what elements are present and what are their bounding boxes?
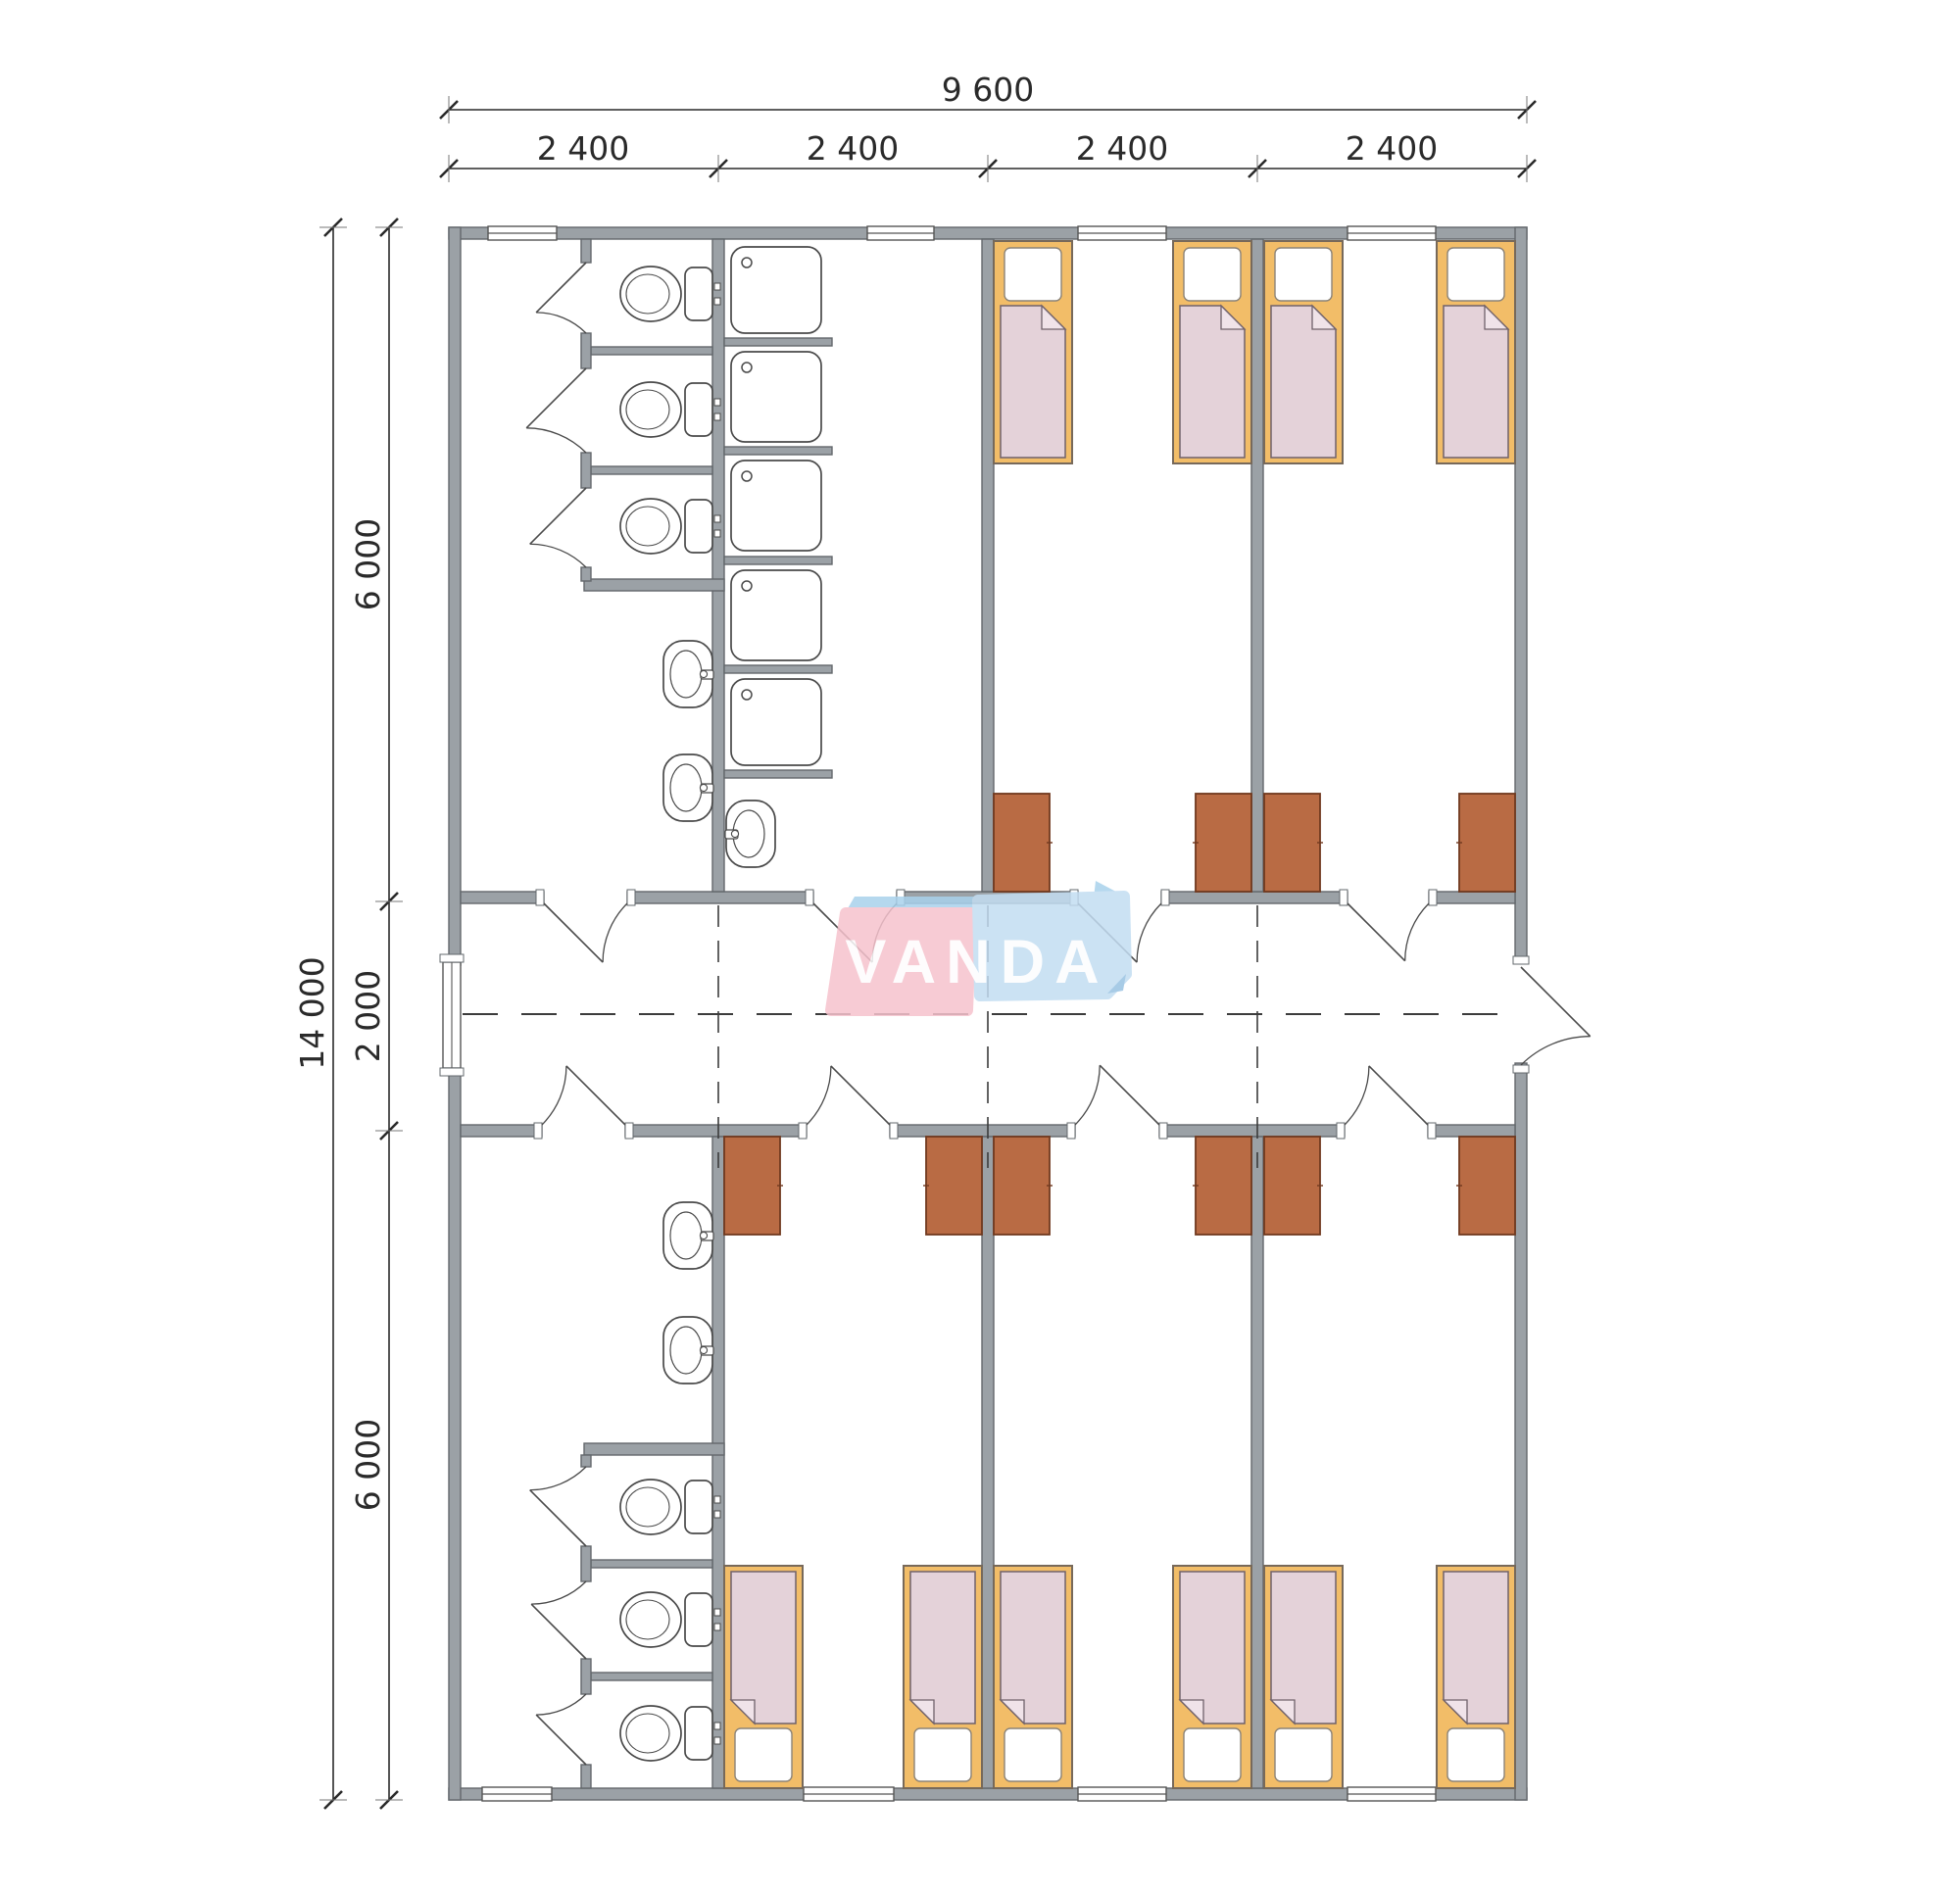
wall-segment [581, 1765, 591, 1788]
door-swing [603, 903, 627, 962]
bed [1437, 1566, 1515, 1788]
desk [1456, 794, 1515, 892]
shower-tray-icon [731, 570, 821, 660]
wall-segment [712, 1137, 724, 1788]
flush-plate [714, 1723, 720, 1729]
desk [1264, 794, 1323, 892]
toilet-icon [620, 1592, 720, 1647]
logo-watermark: VANDA [831, 881, 1129, 1010]
toilet-tank [685, 1707, 712, 1760]
desk-top [1264, 794, 1320, 892]
dimension-label: 2 400 [807, 129, 899, 168]
flush-plate [714, 1609, 720, 1616]
washbasin-icon [663, 754, 713, 821]
stall-door-swing [530, 1467, 586, 1490]
wall-segment [1515, 1063, 1527, 1800]
dimension-label: 2 000 [349, 970, 387, 1062]
shower-tray [731, 247, 821, 333]
desk [994, 1137, 1053, 1235]
pillow [1447, 1728, 1504, 1781]
toilet-icon [620, 1706, 720, 1761]
wall-segment [449, 1068, 461, 1800]
stall-door-leaf [536, 263, 586, 313]
shower-tray [731, 679, 821, 765]
flush-plate [714, 515, 720, 522]
wall-segment [982, 239, 994, 892]
flush-plate [714, 413, 720, 420]
wall-segment [591, 1560, 712, 1568]
wall-segment [890, 1125, 1075, 1137]
shower-tray-icon [731, 352, 821, 442]
wall-segment [581, 453, 591, 488]
wall-segment [591, 347, 712, 355]
door-leaf [831, 1066, 890, 1125]
wall-segment [712, 239, 724, 892]
wall-segment [1159, 1125, 1345, 1137]
toilet-tank [685, 500, 712, 553]
toilet-tank [685, 383, 712, 436]
washbasin-icon [663, 641, 713, 707]
desk-top [1264, 1137, 1320, 1235]
desk [1193, 1137, 1251, 1235]
door-jamb [1067, 1123, 1075, 1139]
pillow [1447, 248, 1504, 301]
wall-segment [581, 567, 591, 581]
desk [1193, 794, 1251, 892]
tap-knob [700, 784, 707, 791]
wall-segment [1429, 892, 1515, 903]
wall-segment [581, 1546, 591, 1581]
door-jamb [536, 890, 544, 905]
washbasin-icon [663, 1202, 713, 1269]
stall-door-swing [536, 313, 586, 333]
washbasin-icon [663, 1317, 713, 1384]
door-leaf [544, 903, 603, 962]
stall-door-leaf [526, 368, 586, 428]
dimension-label: 9 600 [942, 71, 1034, 109]
pillow [1275, 248, 1332, 301]
bed [1173, 241, 1251, 463]
wall-segment [1161, 892, 1347, 903]
shower-tray-icon [731, 461, 821, 551]
door-jamb [534, 1123, 542, 1139]
stall-door-swing [530, 544, 586, 567]
pillow [1275, 1728, 1332, 1781]
door-jamb [627, 890, 635, 905]
wall-segment [461, 892, 544, 903]
flush-plate [714, 530, 720, 537]
toilet-icon [620, 382, 720, 437]
wall-segment [591, 1673, 712, 1680]
stall-door-swing [536, 1694, 586, 1715]
flush-plate [714, 1737, 720, 1744]
wall-segment [724, 770, 832, 778]
door-leaf [1347, 903, 1405, 961]
wall-segment [581, 239, 591, 263]
wall-segment [449, 227, 461, 965]
wall-segment [724, 665, 832, 673]
bed [1264, 1566, 1343, 1788]
desk-top [1459, 1137, 1515, 1235]
bed [1437, 241, 1515, 463]
shower-tray [731, 461, 821, 551]
door-jamb [1513, 956, 1529, 964]
door-jamb [1337, 1123, 1345, 1139]
dimension-label: 2 400 [537, 129, 629, 168]
desk [1264, 1137, 1323, 1235]
toilet-icon [620, 267, 720, 321]
flush-plate [714, 1624, 720, 1630]
pillow [1004, 1728, 1061, 1781]
desk-top [994, 1137, 1050, 1235]
door-jamb [799, 1123, 807, 1139]
door-leaf [1369, 1066, 1428, 1125]
door-leaf [1100, 1065, 1159, 1125]
bed [994, 1566, 1072, 1788]
desk-top [994, 794, 1050, 892]
pillow [1184, 1728, 1241, 1781]
wall-segment [581, 1659, 591, 1694]
toilet-tank [685, 1593, 712, 1646]
door-jamb [1513, 1065, 1529, 1073]
bed [994, 241, 1072, 463]
toilet-tank [685, 1481, 712, 1533]
wall-segment [581, 333, 591, 368]
door-swing [1345, 1066, 1369, 1125]
shower-tray [731, 352, 821, 442]
desk [1456, 1137, 1515, 1235]
wall-segment [584, 1443, 724, 1455]
door-swing [1405, 903, 1429, 961]
shower-tray-icon [731, 679, 821, 765]
door-jamb [1159, 1123, 1167, 1139]
desk-top [1459, 794, 1515, 892]
floor-plan-drawing: 9 6002 4002 4002 4002 40014 0006 0002 00… [0, 0, 1960, 1894]
stall-door-leaf [531, 1604, 586, 1659]
wall-segment [581, 1455, 591, 1467]
door-swing [542, 1066, 566, 1125]
dimension-label: 14 000 [293, 956, 331, 1069]
bed [1264, 241, 1343, 463]
wall-segment [627, 892, 813, 903]
tap-knob [731, 830, 738, 837]
toilet-icon [620, 1480, 720, 1534]
wall-segment [461, 1125, 542, 1137]
door-jamb [1429, 890, 1437, 905]
door-jamb [625, 1123, 633, 1139]
stall-door-swing [526, 428, 586, 453]
wall-segment [724, 338, 832, 346]
bed [904, 1566, 982, 1788]
dimension-label: 2 400 [1076, 129, 1168, 168]
flush-plate [714, 399, 720, 406]
door-swing [1137, 903, 1161, 962]
logo-text: VANDA [845, 928, 1108, 996]
wall-segment [625, 1125, 807, 1137]
flush-plate [714, 298, 720, 305]
wall-segment [1251, 1137, 1263, 1788]
entrance-door-swing [1521, 1037, 1591, 1065]
desk-top [1196, 1137, 1251, 1235]
wall-segment [1251, 239, 1263, 892]
wall-segment [724, 557, 832, 564]
wall-segment [982, 1137, 994, 1788]
stall-door-leaf [536, 1715, 586, 1765]
desk [923, 1137, 982, 1235]
desk [724, 1137, 783, 1235]
tap-knob [700, 1232, 707, 1238]
pillow [1184, 248, 1241, 301]
shower-tray-icon [731, 247, 821, 333]
door-jamb [890, 1123, 898, 1139]
toilet-icon [620, 499, 720, 554]
dimension-label: 6 000 [349, 518, 387, 610]
tap-knob [700, 670, 707, 677]
door-jamb [440, 954, 464, 962]
floor-plan-page: 9 6002 4002 4002 4002 40014 0006 0002 00… [0, 0, 1960, 1894]
desk [994, 794, 1053, 892]
door-jamb [1340, 890, 1347, 905]
desk-top [926, 1137, 982, 1235]
washbasin-icon [725, 801, 775, 867]
stall-door-leaf [530, 488, 586, 544]
entrance-door-leaf [1521, 967, 1591, 1037]
door-jamb [806, 890, 813, 905]
door-jamb [440, 1068, 464, 1076]
dimension-label: 2 400 [1346, 129, 1438, 168]
pillow [914, 1728, 971, 1781]
bed [724, 1566, 803, 1788]
wall-segment [591, 466, 712, 474]
wall-segment [1428, 1125, 1515, 1137]
desk-top [724, 1137, 780, 1235]
desk-top [1196, 794, 1251, 892]
door-jamb [1428, 1123, 1436, 1139]
flush-plate [714, 283, 720, 290]
stall-door-leaf [530, 1490, 586, 1546]
pillow [1004, 248, 1061, 301]
flush-plate [714, 1511, 720, 1518]
tap-knob [700, 1346, 707, 1353]
wall-segment [724, 447, 832, 455]
dimension-label: 6 000 [349, 1419, 387, 1511]
toilet-tank [685, 267, 712, 320]
door-swing [1075, 1065, 1100, 1125]
wall-segment [584, 579, 724, 591]
door-swing [807, 1066, 831, 1125]
door-leaf [566, 1066, 625, 1125]
pillow [735, 1728, 792, 1781]
flush-plate [714, 1496, 720, 1503]
wall-segment [1515, 227, 1527, 962]
door-jamb [1161, 890, 1169, 905]
shower-tray [731, 570, 821, 660]
bed [1173, 1566, 1251, 1788]
stall-door-swing [531, 1581, 586, 1604]
